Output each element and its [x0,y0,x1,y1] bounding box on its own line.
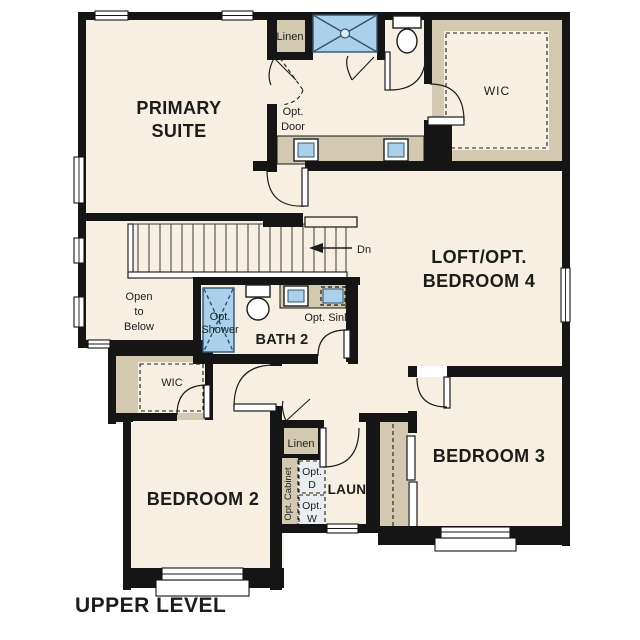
label-opt-shower: Shower [201,324,239,336]
label-opt-door: Opt. [283,106,304,118]
label-opt-sink: Opt. Sink [304,312,350,324]
stair-landing-step [305,217,357,227]
room-label-loft: LOFT/OPT. [431,247,527,267]
label-opt-washer: Opt. [302,500,322,512]
room-label-primary-wic: WIC [484,84,510,98]
bath2-vanity-counter [280,284,346,308]
label-open-to-below: Open [126,291,153,303]
room-label-bedroom2-wic: WIC [161,377,182,389]
label-opt-dryer: Opt. [302,466,322,478]
label-opt-washer: W [307,513,317,525]
primary-vanity-counter [277,136,424,164]
label-opt-cabinet: Opt. Cabinet [283,467,294,521]
room-label-laundry: LAUN [328,482,367,497]
window [74,297,84,327]
label-open-to-below: to [134,306,143,318]
room-label-primary-suite: PRIMARY [136,98,221,118]
bay-window [156,568,249,596]
sink-icon [294,139,318,161]
sliding-door-panel [409,482,417,527]
label-linen-hall: Linen [288,438,315,450]
window [74,157,84,203]
floor-plan-page: PRIMARY SUITE Linen Opt. Door WIC LOFT/O… [0,0,640,640]
room-label-bedroom3: BEDROOM 3 [433,446,546,466]
label-opt-shower: Opt. [210,311,231,323]
label-open-to-below: Below [124,321,154,333]
label-opt-door: Door [281,121,305,133]
page-title: UPPER LEVEL [75,594,226,617]
label-down: Dn [357,244,371,256]
room-label-loft: BEDROOM 4 [423,271,536,291]
shower-icon [313,15,377,52]
window [74,238,84,263]
label-opt-dryer: D [308,479,316,491]
window [95,11,128,20]
floor-plan-drawing: PRIMARY SUITE Linen Opt. Door WIC LOFT/O… [0,0,640,640]
staircase [128,217,357,278]
window [88,340,110,348]
bedroom2-wic-closet [108,348,205,420]
label-linen-primary: Linen [277,31,304,43]
sink-icon [284,286,308,306]
toilet-icon [246,285,270,320]
window [327,524,358,533]
room-label-bath2: BATH 2 [255,332,308,348]
sliding-door-panel [407,436,415,480]
stair-railing [128,224,133,278]
window [222,11,253,20]
optional-sink-icon [321,287,345,305]
sink-icon [384,139,408,161]
room-label-primary-suite: SUITE [151,121,206,141]
bedroom3-closet [378,422,417,529]
room-label-bedroom2: BEDROOM 2 [147,489,260,509]
window [561,268,570,322]
bay-window [435,527,516,551]
